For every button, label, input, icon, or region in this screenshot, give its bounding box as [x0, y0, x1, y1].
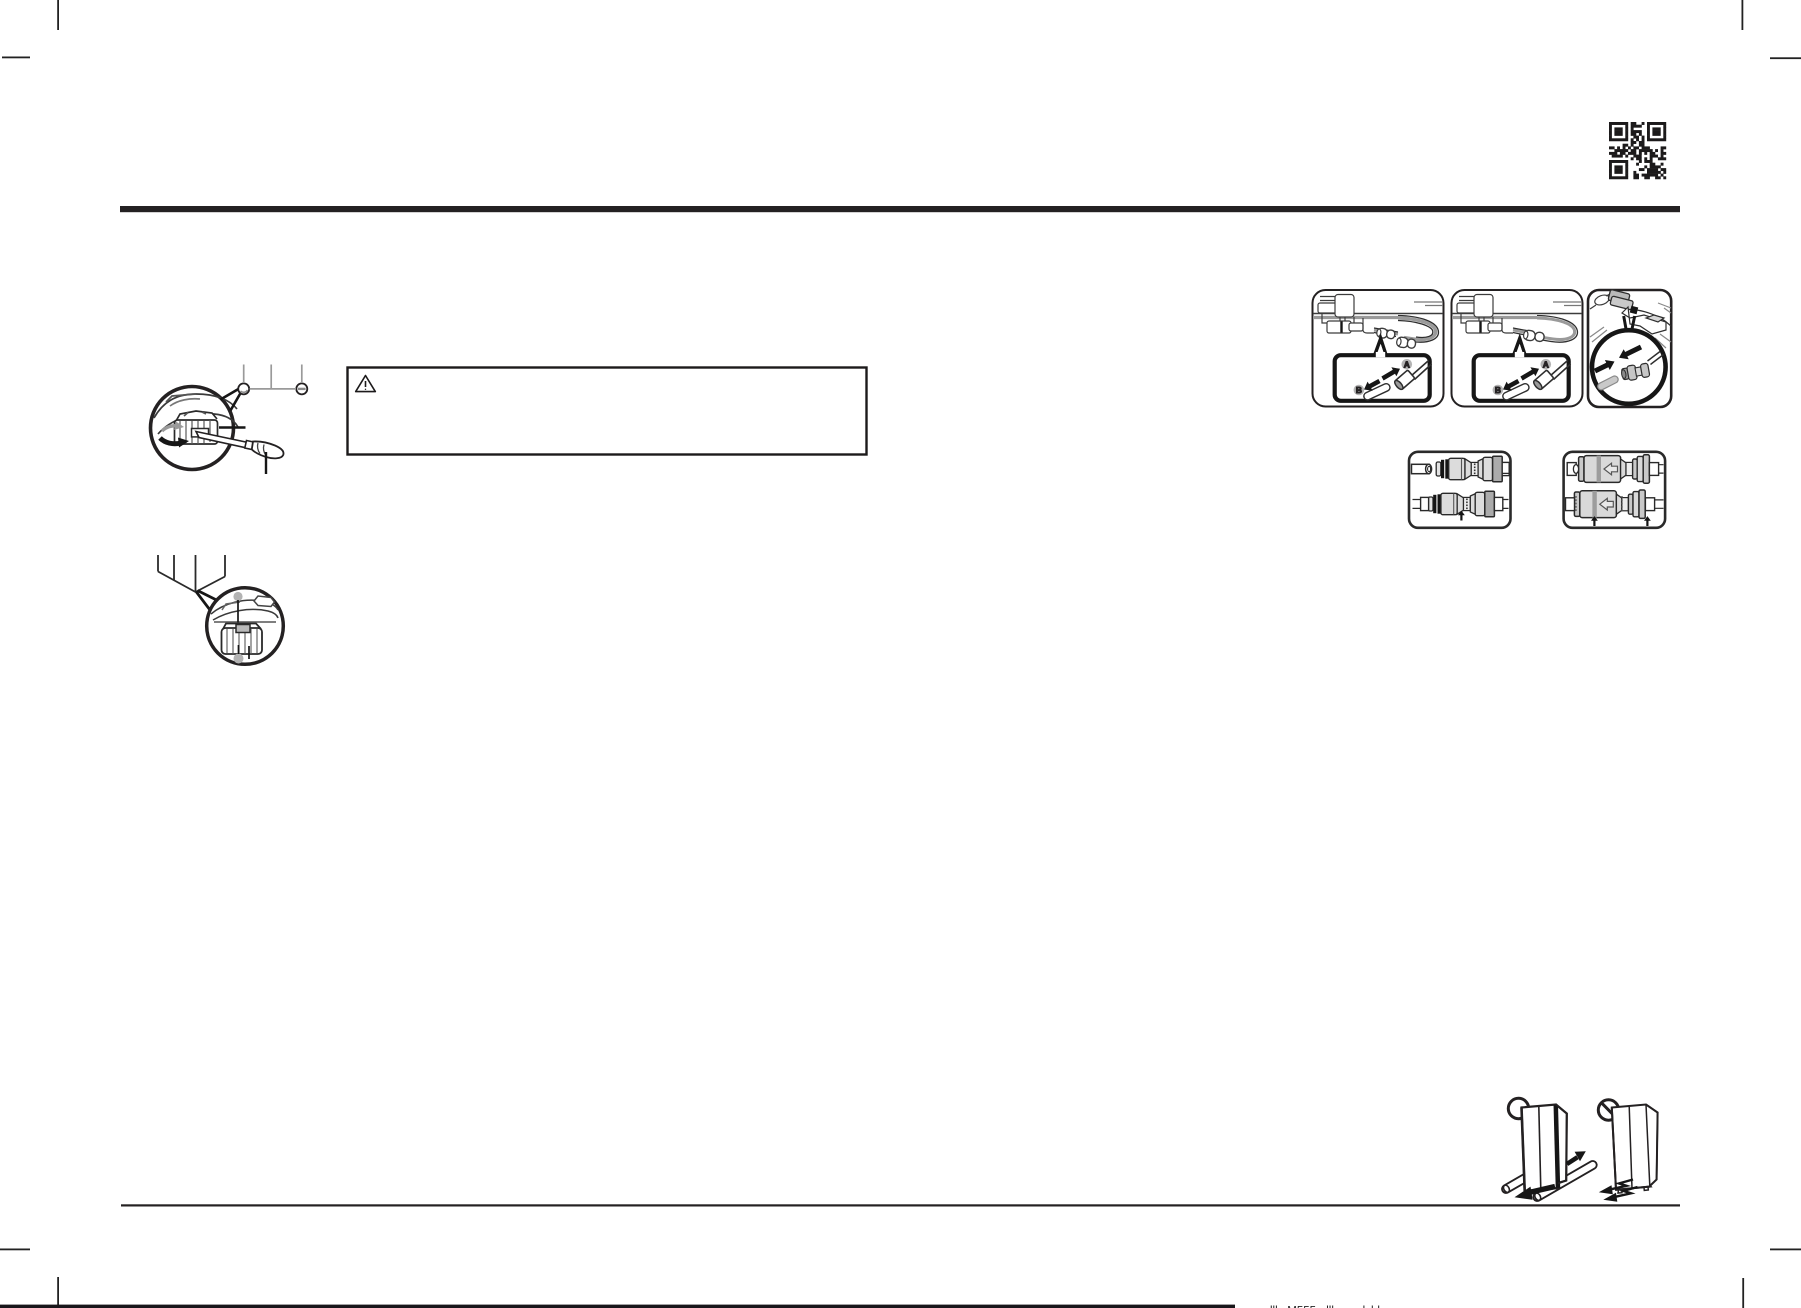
- svg-text:B: B: [1356, 385, 1362, 395]
- svg-text:A: A: [1543, 359, 1549, 369]
- svg-text:A: A: [1404, 359, 1410, 369]
- svg-text:B: B: [1495, 385, 1501, 395]
